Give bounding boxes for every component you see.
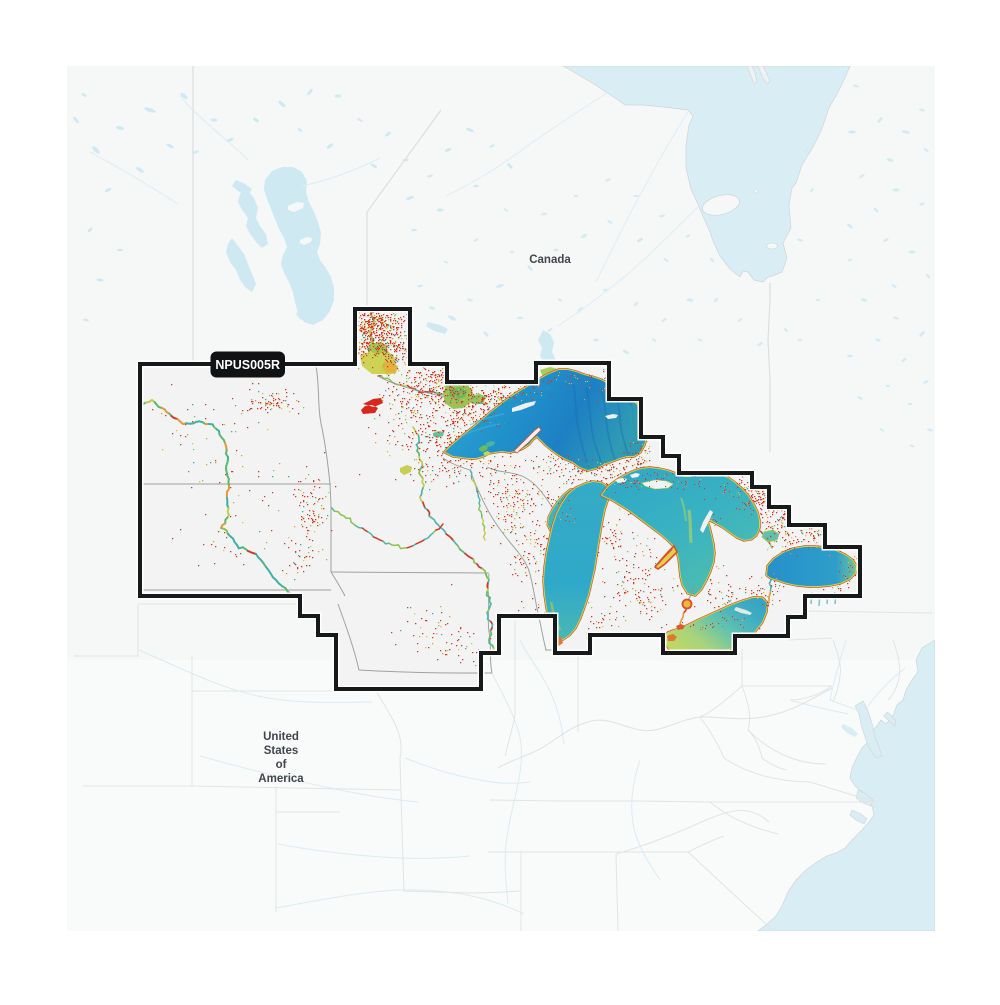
svg-text:United: United xyxy=(263,731,299,743)
svg-text:of: of xyxy=(276,759,287,771)
svg-text:States: States xyxy=(264,745,299,757)
svg-text:Canada: Canada xyxy=(529,254,571,266)
svg-text:NPUS005R: NPUS005R xyxy=(215,358,280,372)
svg-text:America: America xyxy=(258,773,304,785)
